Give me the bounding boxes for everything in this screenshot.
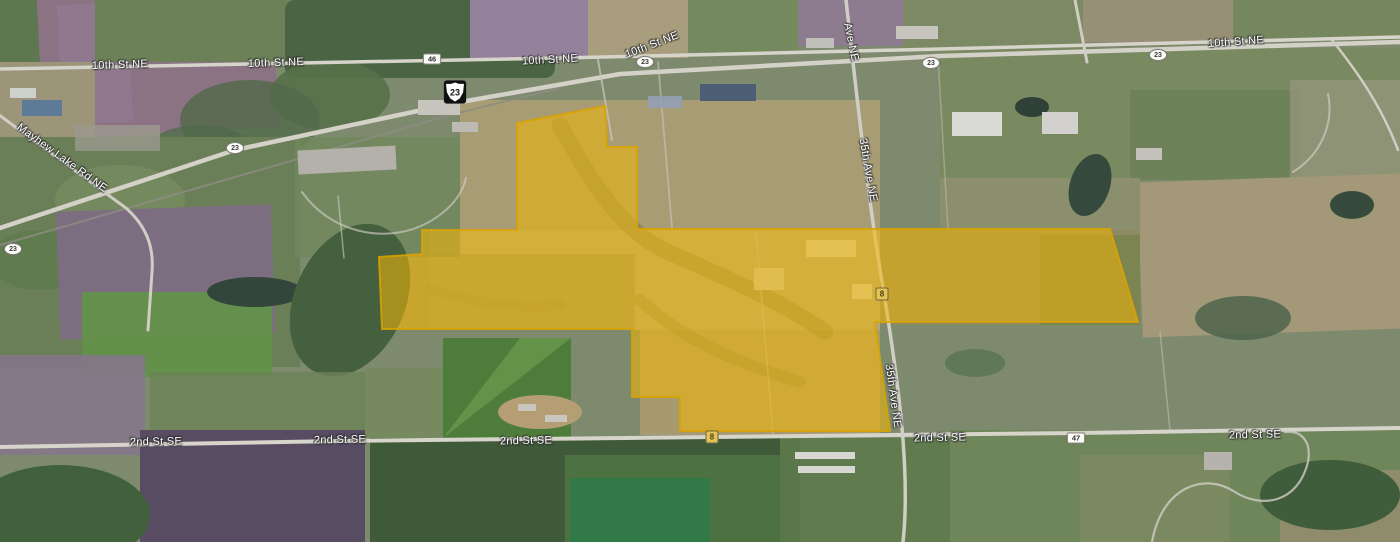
- satellite-map[interactable]: 10th St NE10th St NE10th St NE10th St NE…: [0, 0, 1400, 542]
- satellite-imagery: [0, 0, 1400, 542]
